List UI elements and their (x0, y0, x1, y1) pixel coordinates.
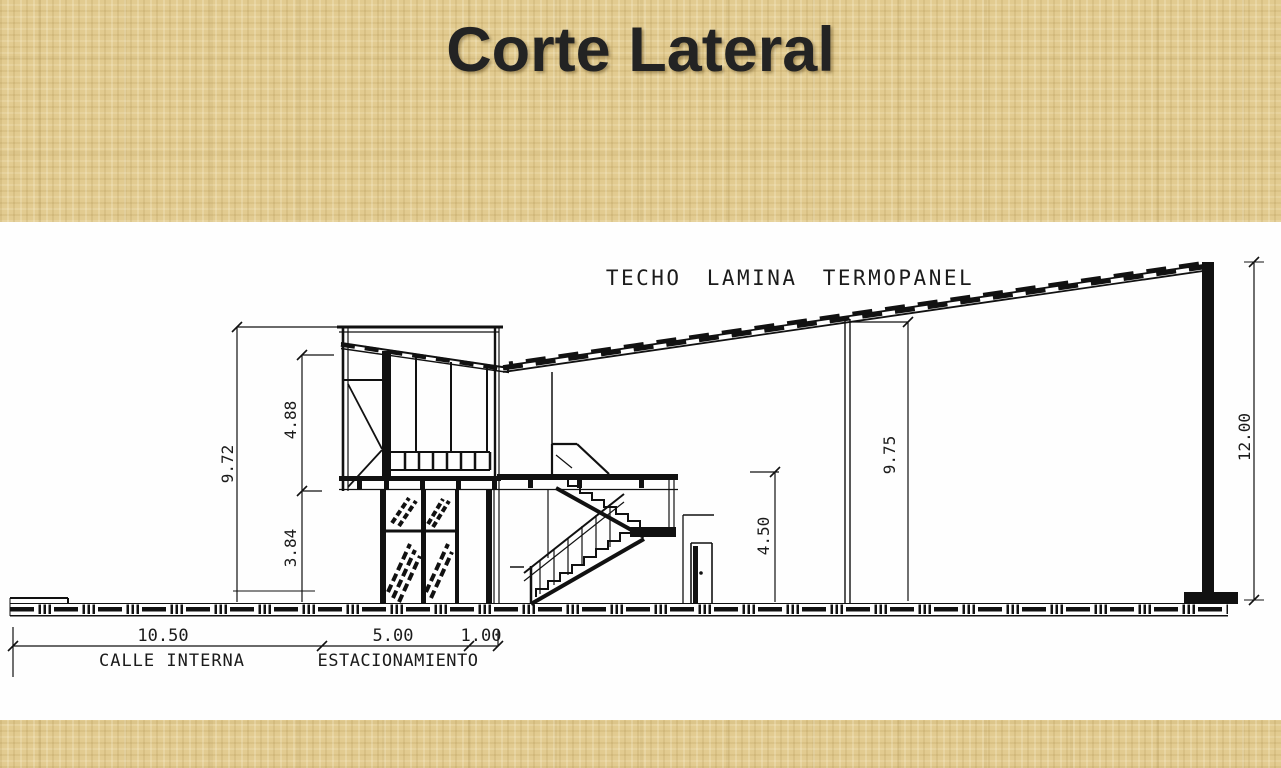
ground-line (10, 591, 1228, 616)
storefront-doors (380, 490, 492, 604)
diagonal-brace (348, 384, 382, 449)
interior-wall (845, 318, 850, 603)
tower-floor-slab (339, 476, 501, 481)
dim-label-1-00: 1.00 (461, 626, 502, 646)
slide: { "slide": { "title": "Corte Lateral" },… (0, 0, 1281, 768)
diagonal-brace (348, 450, 382, 487)
dim-label-5-00: 5.00 (373, 626, 414, 646)
ground-label-estacionamiento: ESTACIONAMIENTO (317, 651, 478, 671)
lower-flight-steps (536, 533, 632, 597)
tower-column (382, 351, 391, 477)
dim-label-9-72: 9.72 (218, 445, 237, 484)
dim-label-9-75: 9.75 (880, 436, 899, 475)
ground-label-calle-interna: CALLE INTERNA (99, 651, 245, 671)
upper-flight-steps (556, 479, 640, 528)
architectural-section-drawing: TECHO LAMINA TERMOPANEL 9.72 4.88 3.84 4… (0, 0, 1281, 768)
door-knob (699, 571, 703, 575)
entry-room (683, 515, 714, 604)
dim-label-4-88: 4.88 (281, 401, 300, 440)
roof-label: TECHO LAMINA TERMOPANEL (606, 266, 974, 290)
staircase (497, 372, 678, 604)
glass-hatch (388, 544, 452, 602)
right-wall-footing (1184, 592, 1238, 604)
stair-landing (630, 527, 676, 537)
dim-label-3-84: 3.84 (281, 529, 300, 568)
dim-label-4-50: 4.50 (754, 517, 773, 556)
dim-label-10-50: 10.50 (137, 626, 188, 646)
glass-hatch (392, 498, 449, 527)
tower-roof-panels (341, 345, 509, 370)
dim-label-12-00: 12.00 (1235, 413, 1254, 461)
mezzanine-slab (497, 474, 678, 480)
door-leaf (693, 546, 698, 603)
right-wall (1184, 262, 1238, 604)
